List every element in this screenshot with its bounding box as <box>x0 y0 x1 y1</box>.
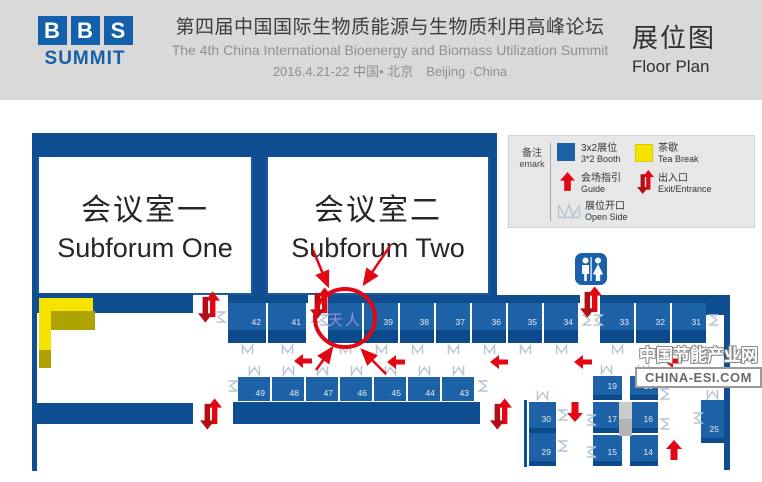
open-side-marker <box>660 418 670 431</box>
booth-44: 44 <box>408 377 440 401</box>
booth-number: 44 <box>426 388 435 398</box>
booth-48: 48 <box>272 377 304 401</box>
booth-25: 25 <box>701 400 724 443</box>
booth-number: 33 <box>620 317 629 327</box>
wall-hall-bottom-left <box>37 403 193 424</box>
open-side-marker <box>519 344 532 354</box>
pillar <box>619 402 632 436</box>
booth-number: 42 <box>252 317 261 327</box>
guide-arrow-down <box>567 402 583 427</box>
booth-number: 29 <box>542 447 551 457</box>
open-side-marker <box>611 344 624 354</box>
booth-number: 16 <box>644 414 653 424</box>
booth-15: 15 <box>593 435 622 466</box>
open-side-marker <box>558 409 568 422</box>
booth-number: 25 <box>710 424 719 434</box>
guide-arrow-left <box>574 355 592 374</box>
watermark: 中国节能产业网 CHINA-ESI.COM <box>635 341 762 388</box>
open-side-marker <box>241 344 254 354</box>
open-side-marker <box>709 314 719 327</box>
booth-42: 42 <box>228 303 266 330</box>
open-side-marker <box>600 365 613 375</box>
booth-number: 47 <box>324 388 333 398</box>
header: B B S SUMMIT 第四届中国国际生物质能源与生物质利用高峰论坛 The … <box>0 0 762 100</box>
exit-entrance-arrows <box>200 398 222 435</box>
booth-49: 49 <box>238 377 270 401</box>
wall-back-bar <box>600 295 708 303</box>
booth-number: 43 <box>460 388 469 398</box>
booth-number: 48 <box>290 388 299 398</box>
tea-break-area-v <box>39 315 51 350</box>
booth-29: 29 <box>529 433 556 466</box>
booth-number: 46 <box>358 388 367 398</box>
open-side-marker <box>587 414 597 427</box>
room-subforum-one: 会议室一 Subforum One <box>37 155 253 295</box>
booth-35: 35 <box>508 303 542 330</box>
booth-45: 45 <box>374 377 406 401</box>
open-side-marker <box>587 446 597 459</box>
booth-32: 32 <box>636 303 670 330</box>
booth-number: 37 <box>456 317 465 327</box>
open-side-marker <box>536 391 549 401</box>
booth-number: 30 <box>542 414 551 424</box>
room2-name-cn: 会议室二 <box>268 185 488 229</box>
guide-arrow-up <box>666 440 682 465</box>
logo-subtitle: SUMMIT <box>30 48 140 70</box>
wall-rooms-top <box>32 133 497 157</box>
guide-arrow-left <box>490 355 508 374</box>
booth-number: 45 <box>392 388 401 398</box>
tea-break-shadow-v <box>39 350 51 368</box>
event-date-location: 2016.4.21-22 中国• 北京 Beijing ·China <box>150 61 630 80</box>
exhibition-floor: 会议室一 Subforum One 会议室二 Subforum Two4241天… <box>0 100 762 482</box>
booth-number: 34 <box>564 317 573 327</box>
event-title-block: 第四届中国国际生物质能源与生物质利用高峰论坛 The 4th China Int… <box>150 12 630 80</box>
booth-31: 31 <box>672 303 706 330</box>
booth-36: 36 <box>472 303 506 330</box>
open-side-marker <box>248 366 261 376</box>
logo-letter-s: S <box>104 16 133 45</box>
event-title-en: The 4th China International Bioenergy an… <box>150 42 630 58</box>
booth-number: 38 <box>420 317 429 327</box>
restroom-icon <box>575 253 607 285</box>
open-side-marker <box>478 380 488 393</box>
booth-47: 47 <box>306 377 338 401</box>
open-side-marker <box>660 388 670 401</box>
logo-letter-b2: B <box>71 16 100 45</box>
booth-number: 15 <box>608 447 617 457</box>
open-side-marker <box>555 344 568 354</box>
wall-row1-right-ext <box>706 295 730 315</box>
open-side-marker <box>452 366 465 376</box>
booth-number: 17 <box>608 414 617 424</box>
open-side-marker <box>229 380 239 393</box>
watermark-cn: 中国节能产业网 <box>635 341 762 366</box>
room1-name-cn: 会议室一 <box>39 185 251 229</box>
booth-number: 49 <box>256 388 265 398</box>
exit-entrance-arrows <box>198 291 220 328</box>
watermark-site: CHINA-ESI.COM <box>635 367 762 388</box>
open-side-marker <box>558 440 568 453</box>
open-side-marker <box>694 412 704 425</box>
open-side-marker <box>418 366 431 376</box>
booth-19: 19 <box>593 376 622 400</box>
booth-43: 43 <box>442 377 474 401</box>
booth-16: 16 <box>630 402 658 433</box>
tea-break-shadow-h <box>51 311 95 330</box>
exit-entrance-arrows <box>580 286 602 323</box>
floorplan-title-en: Floor Plan <box>632 57 742 77</box>
booth-30: 30 <box>529 402 556 433</box>
logo-squares: B B S <box>30 16 140 45</box>
booth-37: 37 <box>436 303 470 330</box>
logo-letter-b1: B <box>38 16 67 45</box>
booth-number: 35 <box>528 317 537 327</box>
event-title-cn: 第四届中国国际生物质能源与生物质利用高峰论坛 <box>150 12 630 39</box>
wall-line-left-of-30 <box>524 400 527 467</box>
room1-name-en: Subforum One <box>39 233 251 264</box>
exit-entrance-arrows <box>490 398 512 435</box>
wall-room-divider <box>253 155 266 295</box>
booth-number: 14 <box>644 447 653 457</box>
bbs-summit-logo: B B S SUMMIT <box>30 16 140 70</box>
open-side-marker <box>447 344 460 354</box>
open-side-marker <box>411 344 424 354</box>
booth-number: 36 <box>492 317 501 327</box>
booth-number: 19 <box>608 381 617 391</box>
booth-34: 34 <box>544 303 578 330</box>
booth-17: 17 <box>593 402 622 433</box>
open-side-marker <box>483 344 496 354</box>
booth-46: 46 <box>340 377 372 401</box>
floorplan-title-block: 展位图 Floor Plan <box>632 18 742 77</box>
booth-number: 31 <box>692 317 701 327</box>
booth-14: 14 <box>630 435 658 466</box>
floor-plan-page: B B S SUMMIT 第四届中国国际生物质能源与生物质利用高峰论坛 The … <box>0 0 762 482</box>
open-side-marker <box>706 390 719 400</box>
booth-number: 32 <box>656 317 665 327</box>
highlight-circle <box>288 238 408 378</box>
wall-room2-right <box>490 155 497 295</box>
floorplan-title-cn: 展位图 <box>632 18 742 55</box>
booth-33: 33 <box>600 303 634 330</box>
